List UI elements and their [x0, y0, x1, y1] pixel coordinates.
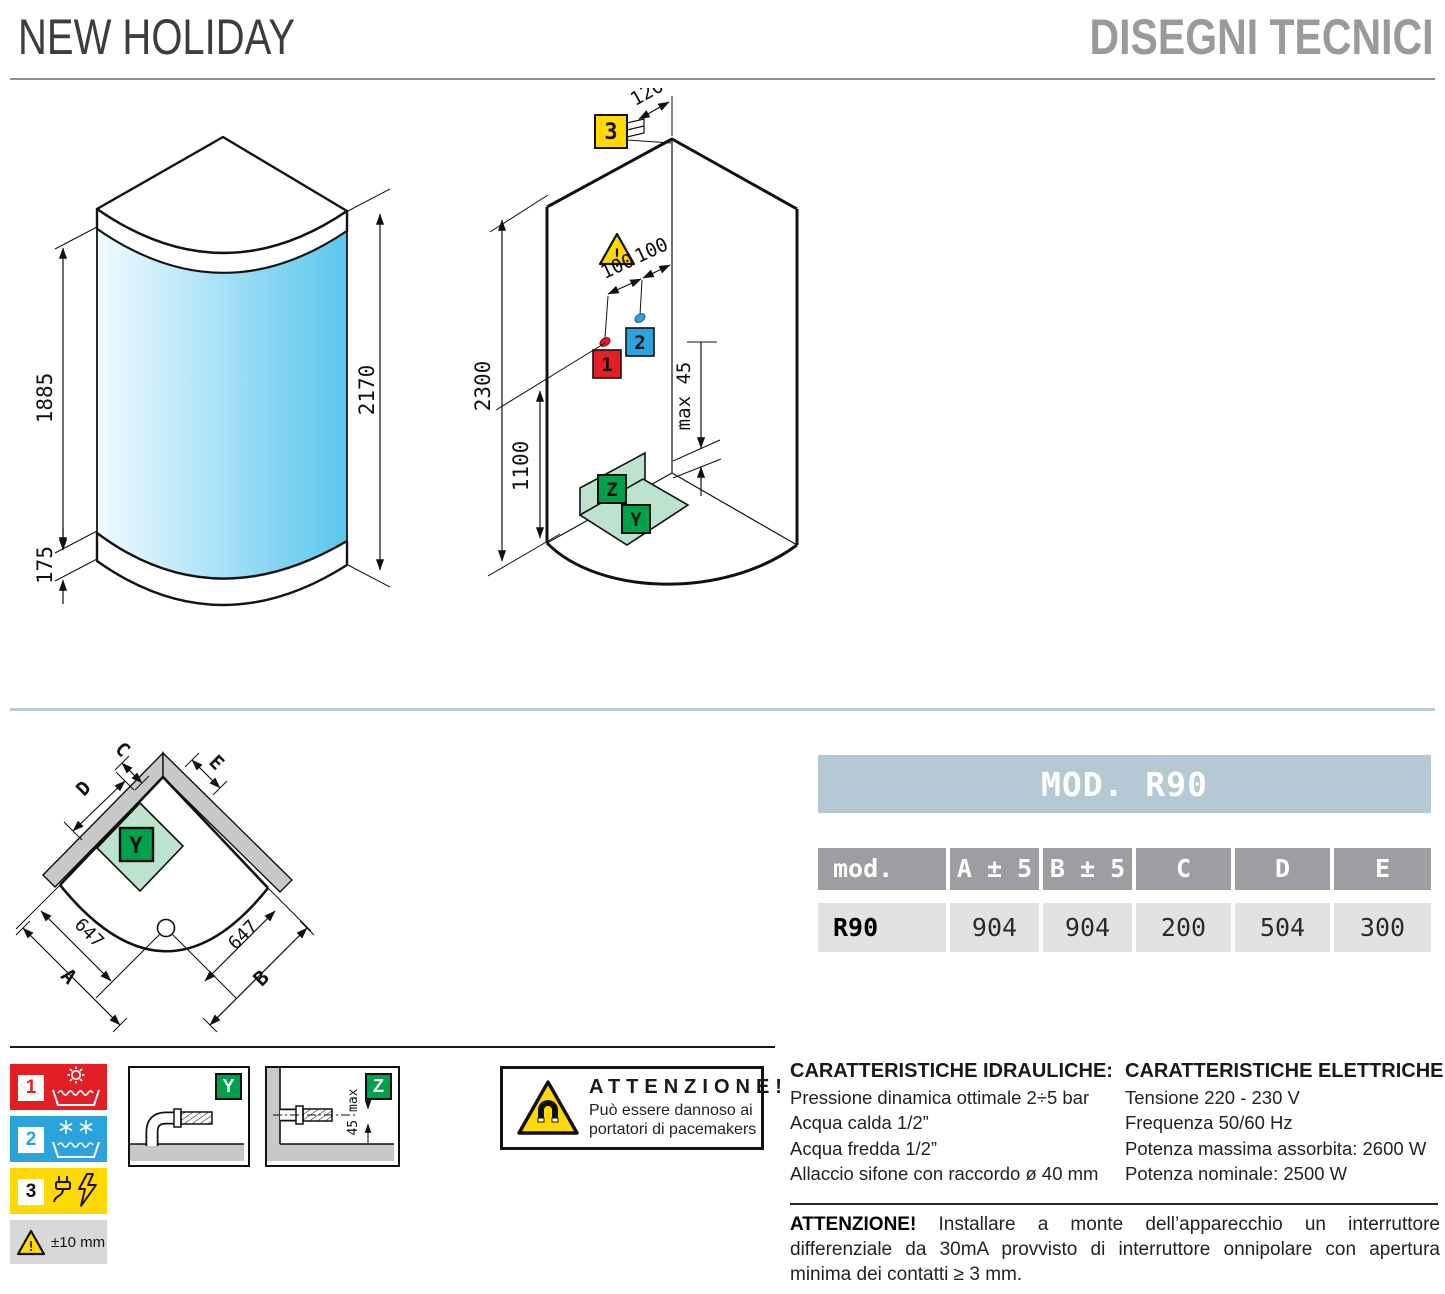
legend-electric-number: 3	[18, 1179, 44, 1205]
dim-electric-offset: 120	[627, 88, 668, 111]
plan-view-drawing: Y D C E 647 647 A B	[8, 726, 343, 1061]
spec-line: Tensione 220 - 230 V	[1125, 1085, 1445, 1110]
dim-d-label: D	[72, 777, 96, 801]
cold-point-number: 2	[634, 332, 645, 354]
col-c: C	[1136, 848, 1231, 890]
value-b: 904	[1043, 903, 1132, 952]
wall-right	[163, 753, 292, 892]
dim-drain-max: max 45	[673, 362, 695, 431]
installation-note: ATTENZIONE! Installare a monte dell’appa…	[790, 1212, 1440, 1287]
value-d: 504	[1235, 903, 1330, 952]
dim-647-right: 647	[224, 916, 262, 954]
warning-line: portatori di pacemakers	[589, 1121, 756, 1139]
sun-basin-icon	[49, 1066, 103, 1108]
spec-line: Acqua fredda 1/2”	[790, 1136, 1113, 1161]
detail-y-badge: Y	[215, 1073, 242, 1100]
spec-line: Potenza massima assorbita: 2600 W	[1125, 1136, 1445, 1161]
dim-tray-height: 175	[33, 546, 57, 584]
tray-arc	[547, 543, 797, 584]
section-divider	[10, 708, 1435, 711]
hydraulic-specs: CARATTERISTICHE IDRAULICHE: Pressione di…	[790, 1058, 1113, 1186]
dim-hot: 100	[597, 249, 637, 283]
electric-point-number: 3	[604, 120, 617, 145]
installation-view-drawing: 120 3 ! 100 100 1 2 2300 1100 max 45	[468, 88, 843, 648]
value-mod: R90	[818, 903, 946, 952]
note-rule	[790, 1203, 1438, 1205]
pacemaker-warning-box: ATTENZIONE! Può essere dannoso ai portat…	[500, 1066, 764, 1150]
spec-line: Allaccio sifone con raccordo ø 40 mm	[790, 1161, 1113, 1186]
front-view-drawing: 2170 1885 175	[28, 118, 433, 623]
dim-glass-height: 1885	[33, 373, 57, 424]
hot-point-number: 1	[601, 354, 612, 376]
electrical-title: CARATTERISTICHE ELETTRICHE:	[1125, 1058, 1445, 1085]
dim-45-max: 45 max	[346, 1088, 361, 1135]
note-title: ATTENZIONE!	[790, 1214, 916, 1235]
electrical-specs: CARATTERISTICHE ELETTRICHE: Tensione 220…	[1125, 1058, 1445, 1186]
table-row: R90 904 904 200 504 300	[818, 903, 1431, 952]
wall-drain-letter: Z	[606, 479, 617, 501]
magnet-warning-icon	[515, 1078, 581, 1138]
warning-mark: !	[27, 1240, 35, 1255]
snowflakes-basin-icon	[49, 1118, 103, 1160]
dim-cold: 100	[631, 233, 671, 267]
legend-cold-number: 2	[18, 1127, 44, 1153]
legend-tolerance: ! ±10 mm	[10, 1220, 107, 1264]
col-mod: mod.	[818, 848, 946, 890]
section-title: DISEGNI TECNICI	[1089, 8, 1433, 66]
legend-hot-number: 1	[18, 1075, 44, 1101]
model-header: MOD. R90	[818, 755, 1431, 813]
spec-line: Pressione dinamica ottimale 2÷5 bar	[790, 1085, 1113, 1110]
col-e: E	[1334, 848, 1431, 890]
detail-z-badge: Z	[365, 1073, 392, 1100]
col-d: D	[1235, 848, 1330, 890]
plug-bolt-icon	[49, 1170, 103, 1212]
page-title: NEW HOLIDAY	[18, 8, 295, 66]
detail-wall-drain: 45 max Z	[265, 1066, 400, 1167]
dim-e-label: E	[204, 751, 228, 775]
warning-triangle-icon: !	[16, 1229, 46, 1256]
warning-line: Può essere dannoso ai	[589, 1102, 753, 1120]
table-header-row: mod. A ± 5 B ± 5 C D E	[818, 848, 1431, 890]
dim-c-label: C	[110, 738, 134, 762]
spec-line: Acqua calda 1/2”	[790, 1110, 1113, 1135]
tolerance-value: ±10 mm	[51, 1234, 105, 1251]
value-c: 200	[1136, 903, 1231, 952]
floor-drain-letter: Y	[129, 834, 143, 859]
dim-b-label: B	[248, 965, 273, 990]
spec-table: MOD. R90 mod. A ± 5 B ± 5 C D E R90 904 …	[818, 755, 1431, 952]
col-b: B ± 5	[1043, 848, 1132, 890]
spec-line: Frequenza 50/60 Hz	[1125, 1110, 1445, 1135]
spec-line: Potenza nominale: 2500 W	[1125, 1161, 1445, 1186]
value-a: 904	[950, 903, 1039, 952]
dim-mixer-height: 1100	[509, 441, 533, 492]
cabin-glass-panel	[97, 229, 347, 579]
header-rule	[10, 78, 1435, 80]
value-e: 300	[1334, 903, 1431, 952]
legend-cold-water: 2	[10, 1116, 107, 1162]
cold-water-point	[633, 312, 646, 325]
detail-floor-drain: Y	[128, 1066, 250, 1167]
floor-drain-letter: Y	[630, 509, 642, 531]
dim-total-height: 2170	[355, 365, 379, 416]
legend-rule	[10, 1046, 775, 1048]
warning-title: ATTENZIONE!	[589, 1076, 788, 1099]
drain-hole	[158, 920, 175, 937]
col-a: A ± 5	[950, 848, 1039, 890]
legend-electric: 3	[10, 1168, 107, 1214]
datasheet-page: NEW HOLIDAY DISEGNI TECNICI 2170 1885	[0, 0, 1445, 1294]
dim-total-height: 2300	[471, 361, 495, 412]
dim-a-label: A	[56, 963, 81, 988]
legend-hot-water: 1	[10, 1064, 107, 1110]
hydraulic-title: CARATTERISTICHE IDRAULICHE:	[790, 1058, 1113, 1085]
